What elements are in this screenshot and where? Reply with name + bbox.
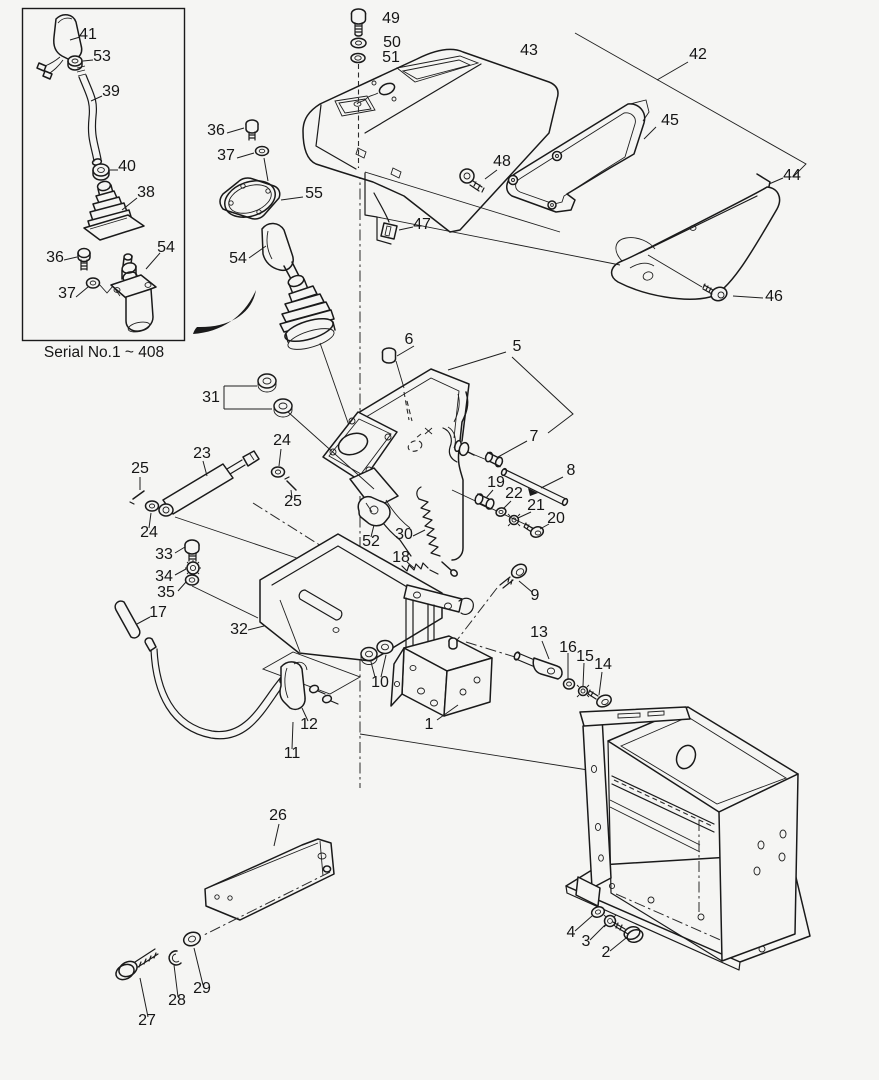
callout-32: 32 — [230, 621, 248, 638]
callout-20: 20 — [547, 510, 565, 527]
callout-54-main: 54 — [229, 250, 247, 267]
callout-6: 6 — [405, 331, 414, 348]
callout-5: 5 — [513, 338, 522, 355]
callout-37-main: 37 — [217, 147, 235, 164]
callout-24-left: 24 — [140, 524, 158, 541]
callout-48: 48 — [493, 153, 511, 170]
callout-47: 47 — [413, 216, 431, 233]
callout-26: 26 — [269, 807, 287, 824]
part-bracket-26 — [113, 824, 334, 1017]
diagram-canvas: 41 53 39 40 38 36 37 54 49 50 51 43 42 4… — [0, 0, 879, 1080]
callout-25-left: 25 — [131, 460, 149, 477]
part-console-cover-43 — [303, 49, 558, 232]
callout-39: 39 — [102, 83, 120, 100]
callout-38: 38 — [137, 184, 155, 201]
callout-37-inset: 37 — [58, 285, 76, 302]
callout-49: 49 — [382, 10, 400, 27]
callout-14: 14 — [594, 656, 612, 673]
callout-41: 41 — [79, 26, 97, 43]
part-joystick-54 — [249, 223, 353, 437]
callout-40: 40 — [118, 158, 136, 175]
callout-16: 16 — [559, 639, 577, 656]
callout-54-inset: 54 — [157, 239, 175, 256]
callout-7: 7 — [530, 428, 539, 445]
part-stand-frame — [566, 707, 810, 970]
callout-36-main: 36 — [207, 122, 225, 139]
callout-33: 33 — [155, 546, 173, 563]
callout-55: 55 — [305, 185, 323, 202]
bracket-52 — [358, 497, 390, 537]
callout-24-right: 24 — [273, 432, 291, 449]
callout-27: 27 — [138, 1012, 156, 1029]
part-gasket-55 — [220, 174, 303, 223]
callout-30: 30 — [395, 526, 413, 543]
transition-arrow — [193, 290, 256, 334]
callout-21: 21 — [527, 497, 545, 514]
callout-45: 45 — [661, 112, 679, 129]
callout-12: 12 — [300, 716, 318, 733]
cap-6 — [383, 346, 415, 420]
callout-18: 18 — [392, 549, 410, 566]
callout-34: 34 — [155, 568, 173, 585]
part-side-cover-44 — [612, 174, 783, 299]
callout-2: 2 — [602, 944, 611, 961]
callout-31: 31 — [202, 389, 220, 406]
callout-11: 11 — [284, 745, 301, 762]
callout-29: 29 — [193, 980, 211, 997]
callout-1: 1 — [425, 716, 434, 733]
callout-10: 10 — [371, 674, 389, 691]
callout-53: 53 — [93, 48, 111, 65]
spring-30 — [413, 487, 458, 577]
callout-17: 17 — [149, 604, 167, 621]
callout-35: 35 — [157, 584, 175, 601]
callout-8: 8 — [567, 462, 576, 479]
callout-52: 52 — [362, 533, 380, 550]
callout-51: 51 — [382, 49, 400, 66]
callout-9: 9 — [531, 587, 540, 604]
callout-15: 15 — [576, 648, 594, 665]
callout-44: 44 — [783, 167, 801, 184]
parts-diagram-page: 41 53 39 40 38 36 37 54 49 50 51 43 42 4… — [0, 0, 879, 1080]
callout-23: 23 — [193, 445, 211, 462]
callout-43: 43 — [520, 42, 538, 59]
bolts-33-34-35 — [175, 540, 258, 618]
callout-25-right: 25 — [284, 493, 302, 510]
bolt-9 — [454, 561, 532, 644]
callout-46: 46 — [765, 288, 783, 305]
callout-28: 28 — [168, 992, 186, 1009]
inset-caption: Serial No.1 ~ 408 — [44, 344, 164, 361]
callout-42: 42 — [689, 46, 707, 63]
callout-22: 22 — [505, 485, 523, 502]
callout-36-inset: 36 — [46, 249, 64, 266]
callout-3: 3 — [582, 933, 591, 950]
callout-13: 13 — [530, 624, 548, 641]
callout-4: 4 — [567, 924, 576, 941]
callout-19: 19 — [487, 474, 505, 491]
